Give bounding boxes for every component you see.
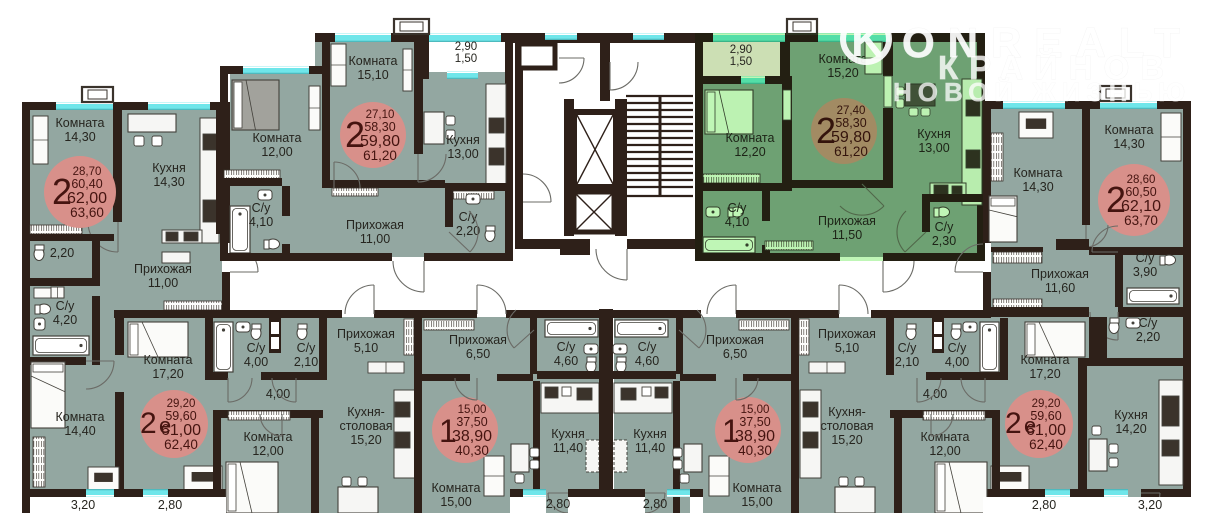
svg-text:1,50: 1,50 (455, 53, 477, 65)
svg-text:40,30: 40,30 (455, 443, 489, 458)
svg-text:14,30: 14,30 (1113, 137, 1144, 151)
svg-text:С/у: С/у (459, 210, 479, 224)
svg-text:11,00: 11,00 (148, 276, 178, 290)
svg-text:3,20: 3,20 (1138, 498, 1162, 512)
svg-text:Кухня: Кухня (551, 427, 584, 441)
svg-text:40,30: 40,30 (738, 443, 772, 458)
svg-text:2,80: 2,80 (1032, 498, 1056, 512)
svg-text:14,40: 14,40 (64, 424, 95, 438)
svg-text:K: K (851, 14, 884, 66)
svg-text:2,90: 2,90 (455, 41, 477, 53)
svg-text:1,50: 1,50 (730, 56, 752, 68)
svg-text:4,00: 4,00 (945, 355, 969, 369)
svg-text:С/у: С/у (948, 341, 968, 355)
svg-text:С/у: С/у (56, 299, 76, 313)
svg-text:2,80: 2,80 (158, 498, 182, 512)
svg-text:Прихожая: Прихожая (818, 327, 876, 341)
svg-text:12,00: 12,00 (252, 444, 283, 458)
svg-text:Кухня: Кухня (446, 133, 479, 147)
svg-text:14,30: 14,30 (153, 175, 184, 189)
svg-text:Комната: Комната (1105, 123, 1154, 137)
svg-text:6,50: 6,50 (466, 347, 490, 361)
svg-text:12,00: 12,00 (261, 145, 292, 159)
svg-text:14,20: 14,20 (1115, 422, 1146, 436)
svg-text:С/у: С/у (557, 340, 577, 354)
svg-text:14,30: 14,30 (1022, 180, 1053, 194)
svg-text:15,00: 15,00 (440, 495, 471, 509)
svg-text:Прихожая: Прихожая (706, 333, 764, 347)
svg-text:59,60: 59,60 (165, 409, 196, 423)
svg-text:62,40: 62,40 (1029, 437, 1063, 452)
svg-text:60,50: 60,50 (1125, 185, 1156, 199)
svg-text:Комната: Комната (253, 131, 302, 145)
svg-text:62,40: 62,40 (164, 437, 198, 452)
svg-text:Кухня: Кухня (633, 427, 666, 441)
svg-text:63,70: 63,70 (1124, 213, 1158, 228)
svg-text:2,80: 2,80 (546, 497, 570, 511)
svg-text:Комната: Комната (921, 430, 970, 444)
svg-text:Комната: Комната (56, 410, 105, 424)
svg-text:2: 2 (1005, 407, 1022, 440)
svg-text:Кухня-: Кухня- (347, 405, 385, 419)
svg-text:Кухня: Кухня (152, 161, 185, 175)
svg-text:2,20: 2,20 (1136, 330, 1160, 344)
svg-text:Комната: Комната (244, 430, 293, 444)
svg-text:11,60: 11,60 (1045, 281, 1075, 295)
svg-text:НОВОЙ ЖИЗНЬЮ: НОВОЙ ЖИЗНЬЮ (893, 77, 1191, 107)
svg-text:Прихожая: Прихожая (449, 333, 507, 347)
svg-text:Прихожая: Прихожая (1031, 267, 1089, 281)
svg-text:2,20: 2,20 (456, 224, 480, 238)
svg-text:С/у: С/у (1136, 251, 1156, 265)
svg-text:5,10: 5,10 (835, 341, 859, 355)
svg-text:Кухня: Кухня (1114, 408, 1147, 422)
svg-text:Кухня-: Кухня- (828, 405, 866, 419)
svg-text:Комната: Комната (56, 116, 105, 130)
svg-text:59,60: 59,60 (1030, 409, 1061, 423)
svg-text:37,50: 37,50 (739, 415, 770, 429)
svg-text:Комната: Комната (432, 481, 481, 495)
svg-text:2: 2 (140, 407, 157, 440)
svg-text:Комната: Комната (1021, 353, 1070, 367)
svg-text:61,20: 61,20 (363, 148, 397, 163)
svg-text:2,90: 2,90 (730, 44, 752, 56)
svg-text:14,30: 14,30 (64, 130, 95, 144)
svg-text:17,20: 17,20 (1029, 367, 1060, 381)
svg-text:Комната: Комната (1014, 166, 1063, 180)
svg-text:столовая: столовая (339, 419, 392, 433)
svg-text:3,20: 3,20 (71, 498, 95, 512)
svg-text:Комната: Комната (144, 353, 193, 367)
svg-text:С/у: С/у (297, 341, 317, 355)
svg-text:С/у: С/у (247, 341, 267, 355)
svg-text:С/у: С/у (638, 340, 658, 354)
svg-text:63,60: 63,60 (70, 205, 104, 220)
svg-text:4,10: 4,10 (249, 215, 273, 229)
svg-text:17,20: 17,20 (152, 367, 183, 381)
svg-text:2,20: 2,20 (50, 246, 74, 260)
svg-text:11,00: 11,00 (360, 232, 390, 246)
svg-text:60,40: 60,40 (71, 177, 102, 191)
svg-text:6,50: 6,50 (723, 347, 747, 361)
svg-text:Прихожая: Прихожая (337, 327, 395, 341)
svg-text:Комната: Комната (733, 481, 782, 495)
svg-text:Прихожая: Прихожая (346, 218, 404, 232)
svg-text:столовая: столовая (820, 419, 873, 433)
svg-text:15,20: 15,20 (350, 433, 381, 447)
svg-text:2,80: 2,80 (643, 497, 667, 511)
svg-text:С/у: С/у (1139, 316, 1159, 330)
svg-text:4,60: 4,60 (554, 354, 578, 368)
svg-text:15,20: 15,20 (831, 433, 862, 447)
svg-text:5,10: 5,10 (354, 341, 378, 355)
svg-text:13,00: 13,00 (447, 147, 478, 161)
svg-text:12,00: 12,00 (929, 444, 960, 458)
svg-text:11,40: 11,40 (553, 441, 583, 455)
svg-text:4,00: 4,00 (244, 355, 268, 369)
svg-text:Прихожая: Прихожая (134, 262, 192, 276)
svg-text:58,30: 58,30 (364, 120, 395, 134)
svg-text:2,10: 2,10 (294, 355, 318, 369)
svg-text:15,10: 15,10 (357, 68, 388, 82)
svg-text:4,60: 4,60 (635, 354, 659, 368)
svg-text:3,90: 3,90 (1133, 265, 1157, 279)
svg-text:37,50: 37,50 (456, 415, 487, 429)
svg-text:С/у: С/у (898, 341, 918, 355)
svg-text:15,00: 15,00 (741, 495, 772, 509)
svg-text:11,40: 11,40 (635, 441, 665, 455)
svg-text:Комната: Комната (349, 54, 398, 68)
svg-text:4,20: 4,20 (53, 313, 77, 327)
svg-text:2,10: 2,10 (895, 355, 919, 369)
svg-text:С/у: С/у (252, 201, 272, 215)
